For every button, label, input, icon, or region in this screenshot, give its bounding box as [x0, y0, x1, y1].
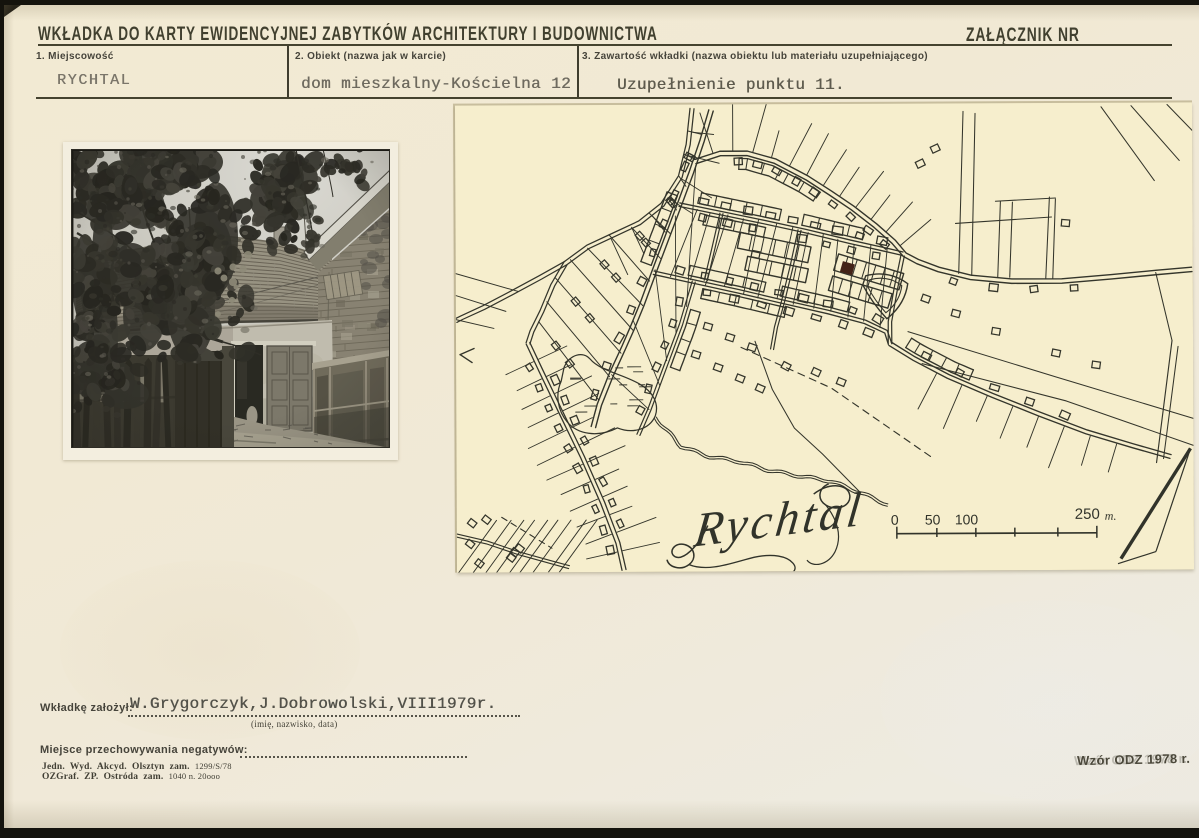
svg-text:m.: m.: [1104, 508, 1116, 522]
svg-text:50: 50: [924, 511, 940, 527]
svg-text:100: 100: [954, 511, 978, 527]
svg-text:Rychtal: Rychtal: [690, 481, 866, 557]
svg-text:0: 0: [890, 511, 898, 527]
svg-text:250: 250: [1074, 505, 1099, 522]
